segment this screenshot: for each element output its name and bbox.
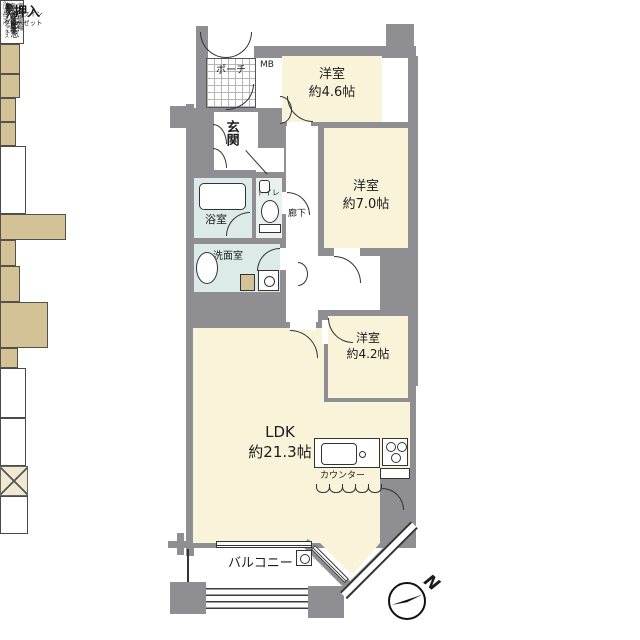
balcony-label: バルコニー [228,555,293,573]
compass-needle [391,585,423,617]
outdoor-unit-bottom: 室外機置場 [0,496,28,534]
toilet-door-gap [282,192,286,214]
burner [391,453,401,463]
walk-in-closet: ウォークインクローゼット [0,302,48,348]
oshiire: 押入 [0,214,66,240]
counter-stools [316,484,382,493]
faucet-icon [300,554,310,564]
counter-label: カウンター [320,470,365,482]
washroom-cabinet [240,274,255,291]
faucet-box [296,550,312,566]
stool-arc [355,484,369,493]
stool-arc [329,484,343,493]
burner [397,442,407,452]
pipe-space [0,466,28,496]
mb-label: MB [260,59,274,71]
balcony-left-edge [187,549,189,585]
monoire-wic: 物入 [0,266,20,302]
outdoor-unit-bottom-label: 室外機置場 [16,3,22,31]
floor-plan: ポーチ MB 洋室約4.6帖 室外機置場 クローゼット シューズボックス 玄関 … [0,0,640,640]
shoes-box: シューズボックス [0,74,20,98]
toilet-tank [259,224,281,233]
washroom-sink [196,252,218,284]
corridor-label: 廊下 [288,208,306,220]
toilet-bowl [261,200,279,223]
bedroom2-door-gap [334,248,360,256]
balcony-sliding-door [216,541,312,548]
bathtub [199,183,246,210]
bedroom2-label: 洋室約7.0帖 [326,178,406,213]
stool-arc [316,484,330,493]
bay-window-1: 出窓 [0,146,26,214]
outdoor-unit-mid: 室外機置場 [0,368,26,418]
stool-arc [368,484,382,493]
room-entrance-hall [256,148,284,172]
porch-label: ポーチ [211,64,251,78]
kitchen-sink [321,443,357,465]
balcony-post-left [170,582,206,614]
washing-machine [258,270,279,291]
bedroom1-door-gap [287,122,311,130]
kitchen-counter [314,438,380,468]
balcony-railing [206,588,310,609]
monoire-hall: 物入 [0,240,16,266]
porch-gate-door-arc-right [226,32,252,58]
toilet-label: トイレ [257,188,280,198]
bay-window-2: 出窓 [0,418,26,466]
wall-cross-v [177,533,184,555]
closet-hall: クローゼット [0,44,20,74]
wall-topright-block [386,24,414,48]
bath-label: 浴室 [205,213,227,228]
washroom-label: 洗面室 [213,250,243,264]
kitchen-faucet [359,451,366,458]
stool-arc [342,484,356,493]
monoire-left-bottom: 入 [0,122,16,146]
bedroom3-door-gap [322,320,328,344]
washroom-door-gap [280,248,286,270]
stove [382,438,408,466]
closet-small: クローゼット [0,348,18,368]
balcony-post-right [308,586,344,618]
burner [386,442,396,452]
monoire-left-top: 物 [0,98,16,122]
corridor-ldk-door-gap [290,320,316,330]
kitchen-ledge [380,468,410,479]
washing-machine-drum [264,276,275,287]
closet-small-label: クローゼット [2,1,6,25]
